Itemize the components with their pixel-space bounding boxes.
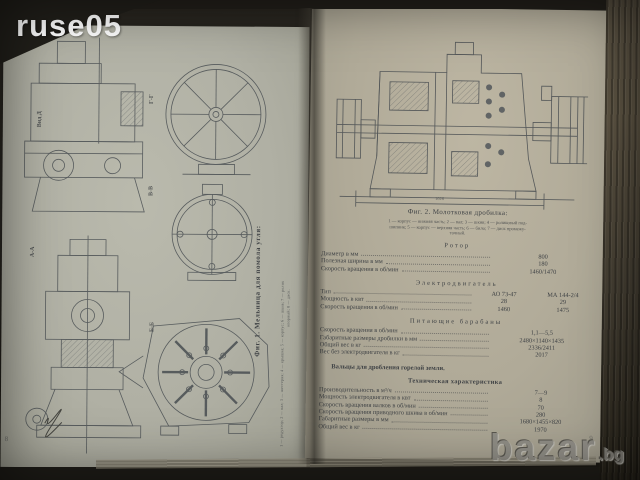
dot-leader (386, 263, 490, 266)
book-photo: Вид Д Г-Г В-В А-А Б-Б Фиг. 1. Мельница д… (0, 0, 640, 480)
fig2-dimension-label: 1026 (435, 196, 444, 201)
spec-value: 1460 (474, 305, 533, 313)
subheading-rollers: Вальцы для дробления горелой земли. (331, 363, 591, 374)
spec-label: Скорость вращения в об/мин (321, 265, 399, 274)
dot-leader (402, 270, 490, 272)
bazar-text: bazar (490, 427, 597, 468)
spec-value: 1460/1470 (493, 267, 593, 276)
spec-label: Вес без электродвигателя в кг (320, 349, 400, 358)
watermark-bazar-logo: bazar.bg (490, 430, 624, 473)
view-label-aa: А-А (30, 246, 36, 257)
section-title-rotor: Ротор (321, 240, 593, 251)
dot-leader (401, 309, 471, 311)
fig1-legend-line2: опорный; 8 — диск. (285, 289, 290, 327)
view-label-vid-d: Вид Д (37, 111, 43, 127)
dot-leader (420, 340, 489, 342)
right-page: 1026 Фиг. 2. Молотковая дробилка: 1 — ко… (305, 6, 608, 463)
dot-leader (401, 332, 489, 334)
view-label-vv: В-В (148, 186, 154, 196)
view-label-bb: Б-Б (149, 322, 155, 332)
dot-leader (413, 399, 487, 401)
watermark-ruse05: ruse05 (16, 8, 122, 44)
dot-leader (395, 392, 488, 394)
book-spine-shadow (298, 8, 326, 464)
section-title-drums: Питающие барабаны (320, 316, 592, 327)
fig1-caption: Фиг. 1. Мельница для помола угля: (253, 225, 262, 356)
section-title-tech: Техническая характеристика (319, 376, 591, 387)
dot-leader (367, 301, 472, 304)
spec-text-block: Фиг. 2. Молотковая дробилка: 1 — корпус … (318, 206, 593, 435)
left-page: Вид Д Г-Г В-В А-А Б-Б Фиг. 1. Мельница д… (0, 25, 309, 469)
fig2-drawing (325, 36, 592, 212)
left-page-number: 8 (5, 435, 9, 443)
spec-value: 2017 (491, 351, 591, 360)
dot-leader (450, 415, 487, 417)
section-title-motor: Электродвигатель (321, 278, 593, 289)
dot-leader (363, 428, 488, 431)
dot-leader (403, 354, 489, 356)
book-edge-background (600, 0, 640, 480)
spec-values-pair: 14601475 (474, 305, 592, 314)
spec-label: Скорость вращения в об/мин (320, 303, 398, 312)
spec-value: 1475 (533, 306, 592, 314)
view-label-gg: Г-Г (149, 94, 155, 104)
bazar-bg-suffix: .bg (599, 445, 625, 464)
dot-leader (419, 407, 488, 409)
dot-leader (392, 421, 488, 424)
